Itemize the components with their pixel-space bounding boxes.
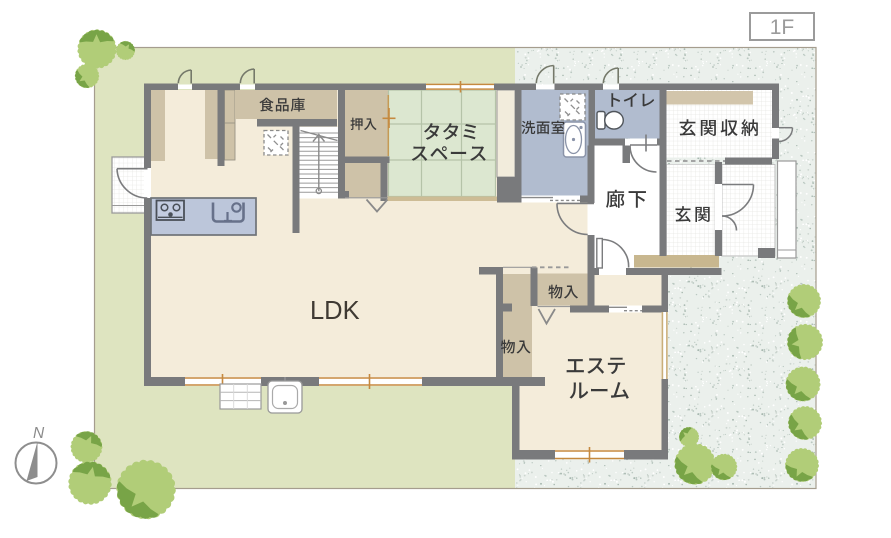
svg-text:1F: 1F xyxy=(770,16,795,39)
svg-text:LDK: LDK xyxy=(310,297,360,325)
svg-text:N: N xyxy=(33,425,45,442)
